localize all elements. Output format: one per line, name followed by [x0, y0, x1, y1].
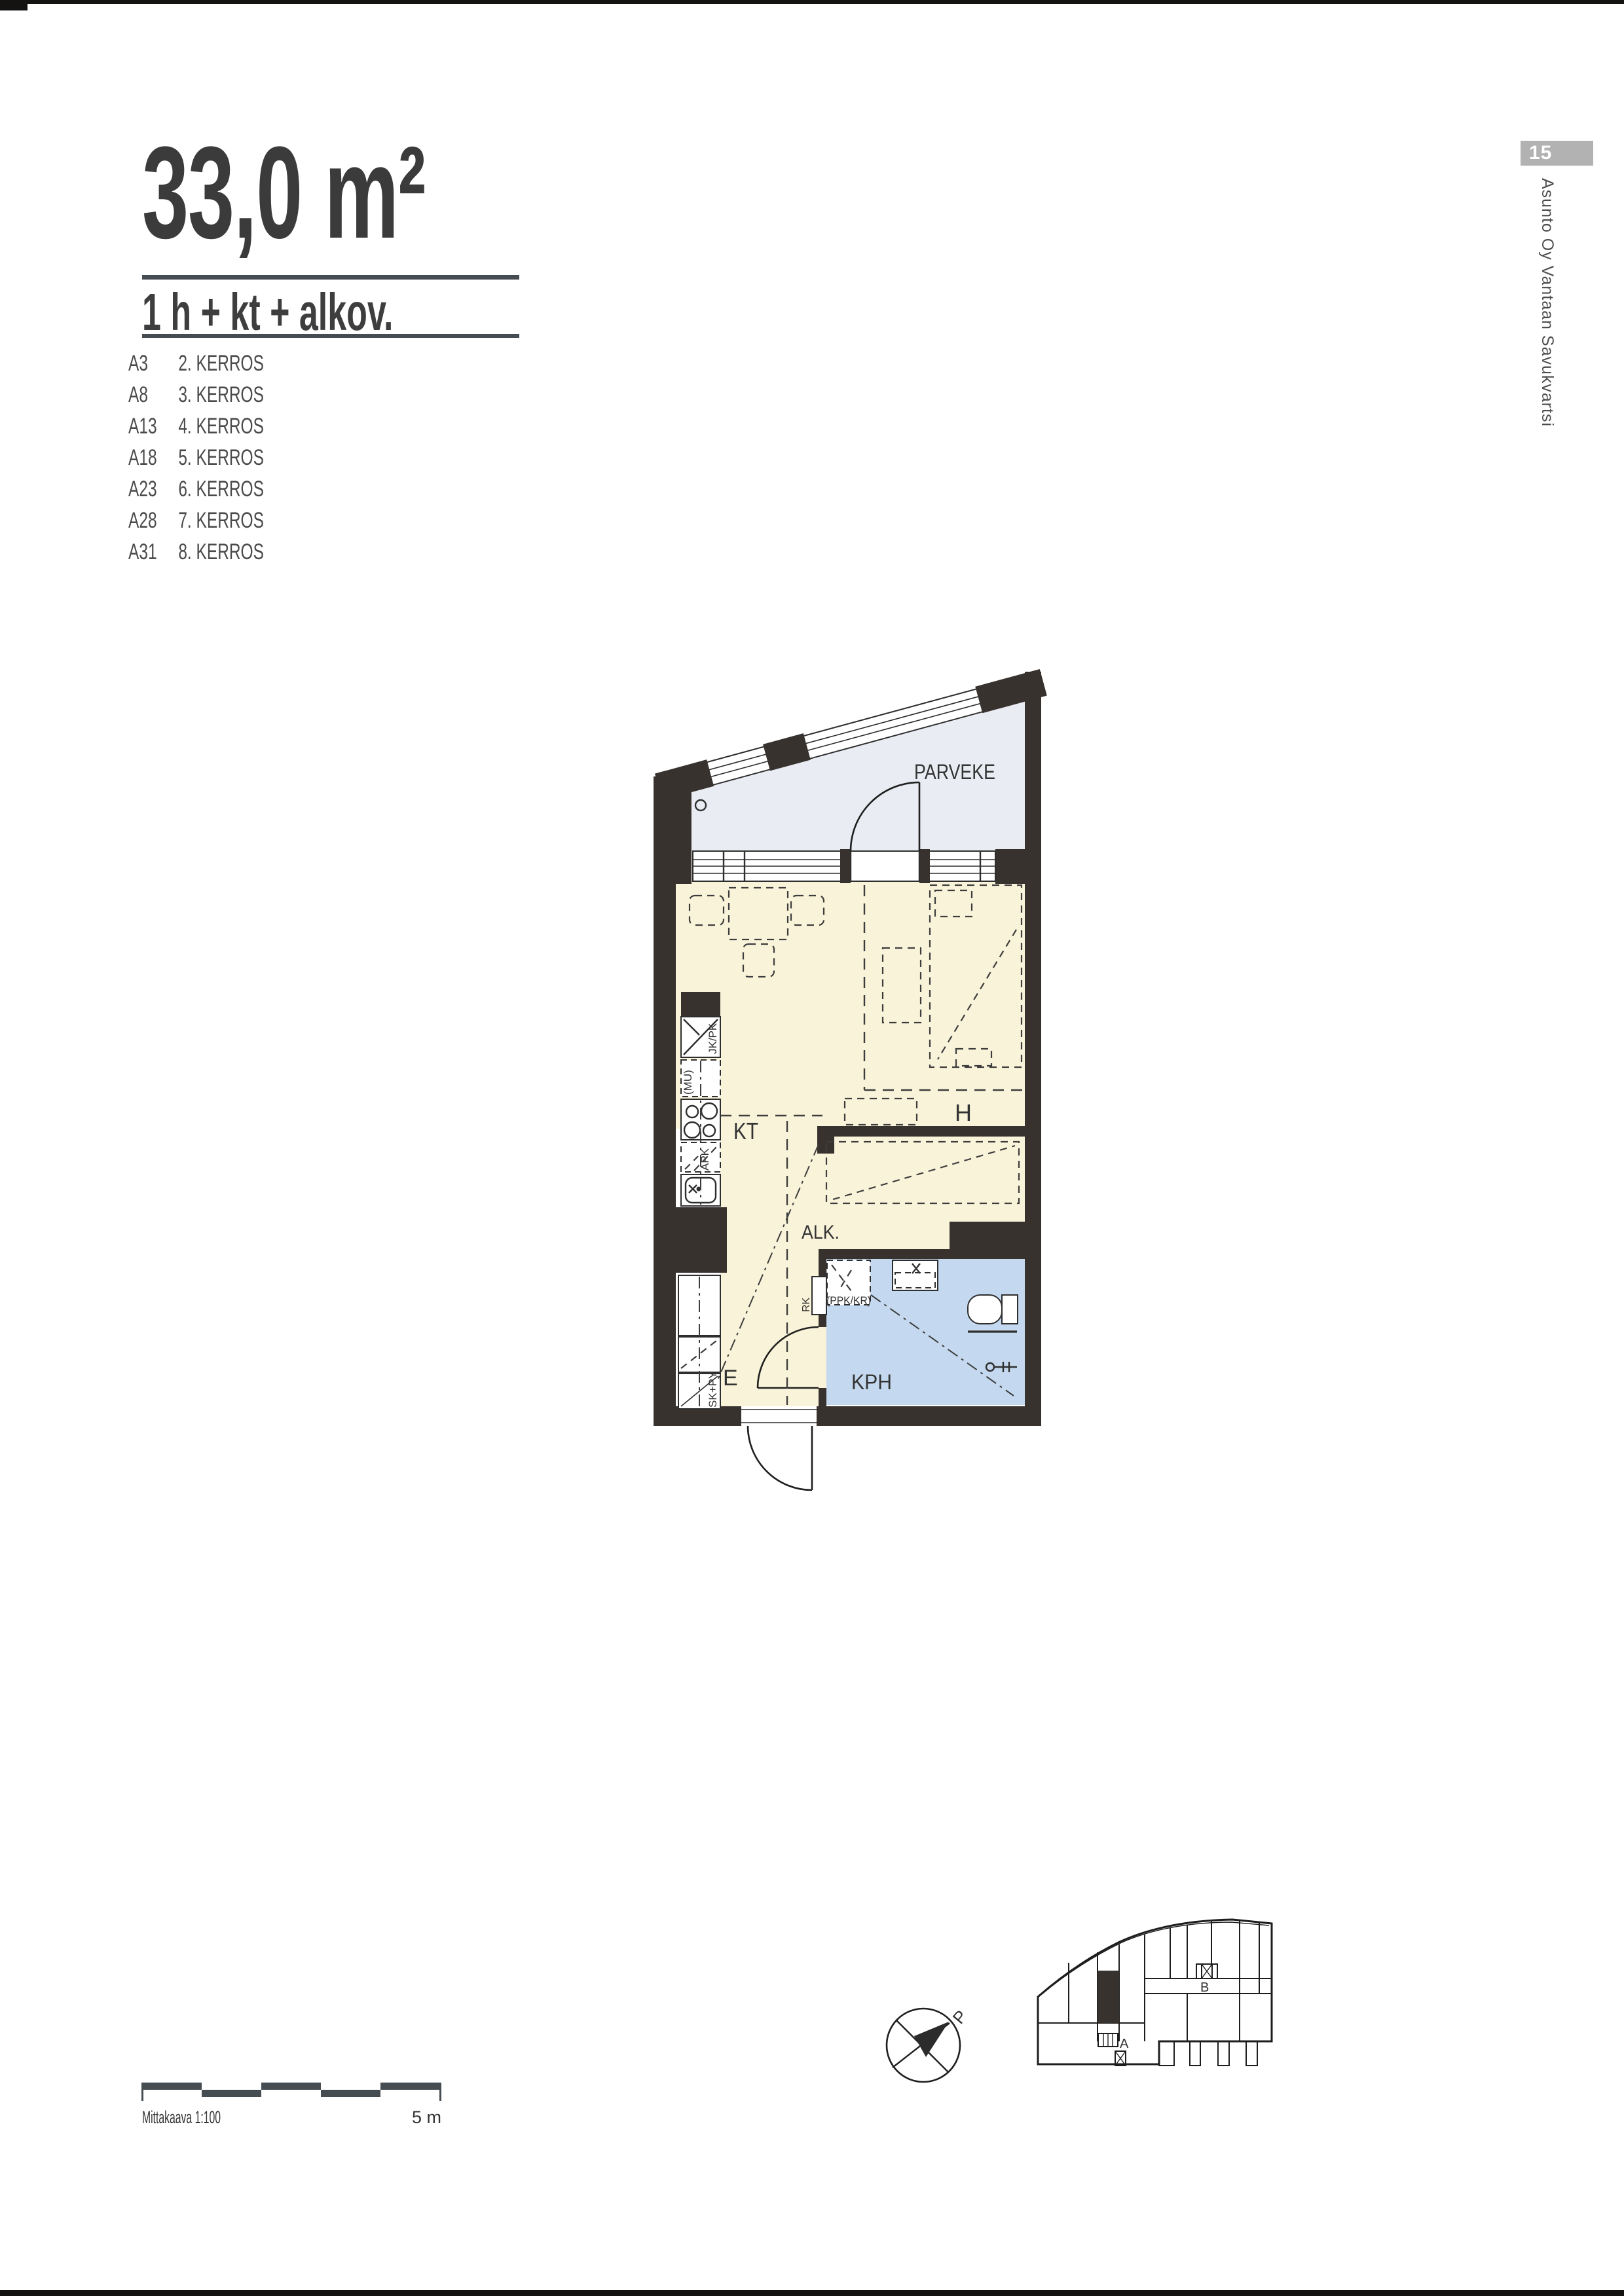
label-balcony: PARVEKE [914, 760, 995, 784]
key-plan: A B [1038, 1920, 1272, 2066]
label-alcove: ALK. [802, 1222, 840, 1243]
alcove-floor [720, 1129, 1025, 1223]
stair-b-label: B [1200, 1980, 1209, 1995]
label-washer-reserve: (PPK/KR) [826, 1294, 871, 1307]
entry-door [741, 1406, 817, 1490]
label-closet: SK+PY [707, 1372, 719, 1408]
electrical-cabinet [812, 1277, 826, 1315]
toilet-tank [1002, 1295, 1018, 1324]
label-bathroom: KPH [851, 1370, 892, 1394]
highlighted-unit [1098, 1971, 1119, 2023]
balcony-door-opening [851, 852, 919, 881]
window-band [693, 849, 995, 883]
scale-label: Mittakaava 1:100 [142, 2107, 221, 2127]
label-room: H [955, 1099, 972, 1126]
scale-max-label: 5 m [412, 2107, 441, 2127]
stair-a-label: A [1120, 2037, 1129, 2051]
floor-plan: PARVEKE KT H ALK. KPH E (PPK/KR) JK/PK (… [654, 669, 1047, 1490]
page-graphics: PARVEKE KT H ALK. KPH E (PPK/KR) JK/PK (… [0, 0, 1624, 2296]
label-fridge: JK/PK [707, 1023, 719, 1054]
compass: P [887, 2007, 971, 2082]
label-electrical: RK [801, 1297, 812, 1312]
toilet-bowl [968, 1295, 1002, 1324]
scale-bar: Mittakaava 1:100 5 m [141, 2083, 441, 2127]
label-microwave: (MU) [682, 1070, 694, 1095]
label-kitchenette: KT [733, 1118, 758, 1144]
balcony-stubs [1159, 2041, 1257, 2066]
label-dishwasher: APK [699, 1148, 711, 1171]
label-entry: E [723, 1366, 738, 1391]
brochure-page: 33,0 m² 1 h + kt + alkov. A32. KERROS A8… [0, 0, 1624, 2296]
building-outline [1038, 1920, 1272, 2064]
